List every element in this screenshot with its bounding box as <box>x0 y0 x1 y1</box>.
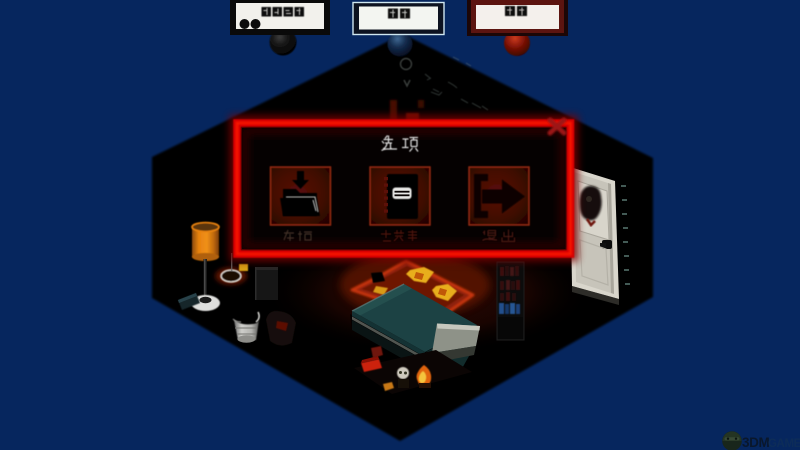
svg-text:GAME: GAME <box>768 438 800 450</box>
svg-text:3DM: 3DM <box>742 435 769 450</box>
